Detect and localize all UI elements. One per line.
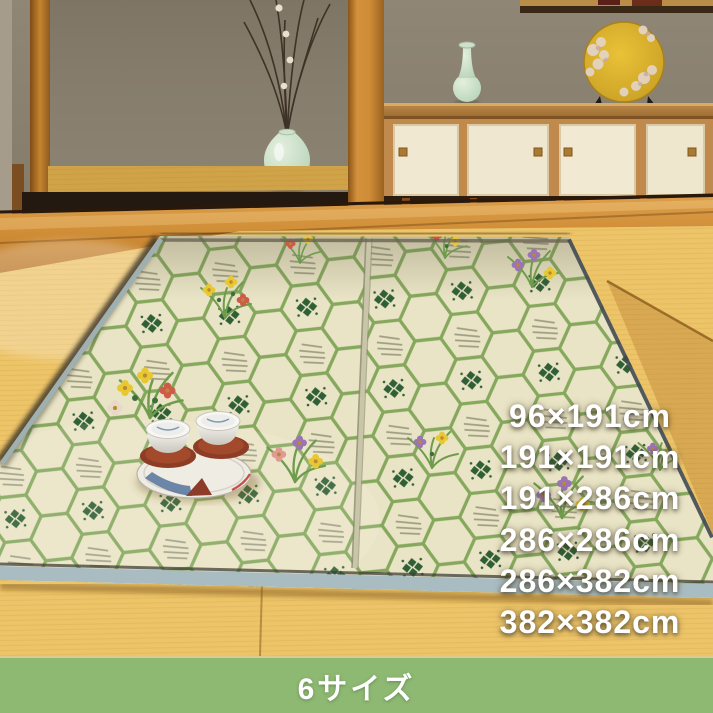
product-photo: 96×191cm 191×191cm 191×286cm 286×286cm 2… <box>0 0 713 713</box>
wall-shelf <box>520 0 713 13</box>
size-option: 191×286cm <box>440 478 713 519</box>
cabinet-doors <box>394 125 704 195</box>
rug-top-shadow <box>160 233 570 234</box>
size-option: 191×191cm <box>440 437 713 478</box>
size-list: 96×191cm 191×191cm 191×286cm 286×286cm 2… <box>440 396 713 643</box>
size-option: 286×382cm <box>440 561 713 602</box>
banner-label: 6サイズ <box>298 664 416 708</box>
size-option: 286×286cm <box>440 520 713 561</box>
size-option: 382×382cm <box>440 602 713 643</box>
alcove-left-post <box>30 0 50 196</box>
size-option: 96×191cm <box>440 396 713 437</box>
size-count-banner: 6サイズ <box>0 656 713 713</box>
wall-corner-strip <box>0 0 12 232</box>
tokonoma-pillar <box>348 0 384 214</box>
